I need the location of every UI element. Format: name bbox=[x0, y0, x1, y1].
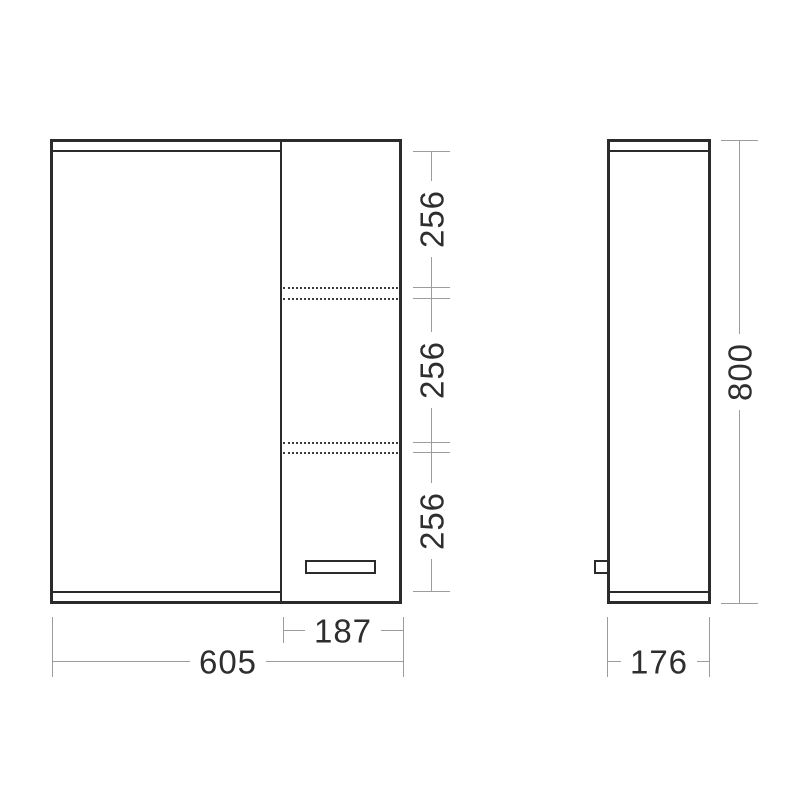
dim-tick bbox=[413, 298, 450, 299]
dim-tick bbox=[721, 140, 758, 141]
extension-line-right bbox=[403, 617, 404, 677]
front-top-panel-line bbox=[52, 150, 281, 152]
door-divider-line bbox=[280, 141, 282, 602]
shelf-dotted-line-2a bbox=[283, 442, 398, 444]
dimension-label-187: 187 bbox=[305, 613, 381, 650]
dimension-label-256-bottom: 256 bbox=[414, 483, 451, 559]
dimension-label-256-middle: 256 bbox=[414, 332, 451, 408]
extension-line-side-right bbox=[709, 617, 710, 677]
side-bottom-panel-line bbox=[610, 591, 708, 593]
dim-tick bbox=[721, 603, 758, 604]
dim-tick bbox=[413, 442, 450, 443]
dimension-label-605: 605 bbox=[190, 644, 266, 681]
shelf-dotted-line-2b bbox=[283, 452, 398, 454]
dim-tick bbox=[413, 591, 450, 592]
side-view-outline bbox=[607, 139, 711, 604]
dimension-label-256-top: 256 bbox=[414, 181, 451, 257]
dim-tick bbox=[413, 287, 450, 288]
side-top-panel-line bbox=[610, 150, 708, 152]
extension-line-left bbox=[52, 617, 53, 677]
shelf-dotted-line-1b bbox=[283, 298, 398, 300]
front-bottom-panel-line bbox=[52, 591, 281, 593]
front-view-outline bbox=[50, 139, 402, 604]
door-handle bbox=[305, 560, 376, 574]
dim-tick bbox=[413, 151, 450, 152]
shelf-dotted-line-1a bbox=[283, 287, 398, 289]
dimension-label-176: 176 bbox=[621, 644, 697, 681]
drawing-canvas: 256 256 256 187 605 800 176 bbox=[0, 0, 800, 800]
extension-line-side-left bbox=[607, 617, 608, 677]
dimension-label-800: 800 bbox=[722, 334, 759, 410]
dim-tick bbox=[413, 452, 450, 453]
